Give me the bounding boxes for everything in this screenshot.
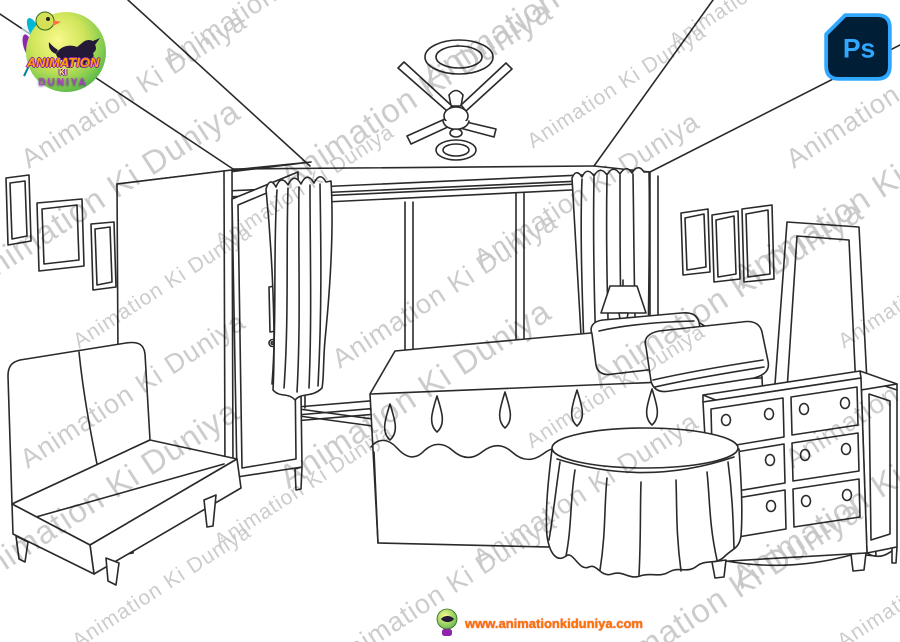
bedroom-line-art (0, 0, 900, 642)
curtain-left (266, 177, 332, 400)
round-table (546, 428, 741, 577)
coloring-page-preview: Animation Ki DuniyaAnimation Ki DuniyaAn… (0, 0, 900, 642)
footer: www.animationkiduniya.com (434, 608, 643, 638)
picture-frames-right (681, 205, 774, 282)
site-logo: ANIMATION KI DUNIYA (4, 0, 122, 110)
logo-ki: KI (4, 69, 122, 77)
photoshop-badge: Ps (824, 13, 892, 81)
logo-duniya: DUNIYA (4, 78, 122, 88)
picture-frames-left (6, 175, 116, 290)
footer-logo-icon (434, 608, 460, 638)
ps-label: Ps (843, 34, 875, 64)
footer-url-link[interactable]: www.animationkiduniya.com (465, 616, 643, 631)
photoshop-icon: Ps (824, 13, 892, 81)
